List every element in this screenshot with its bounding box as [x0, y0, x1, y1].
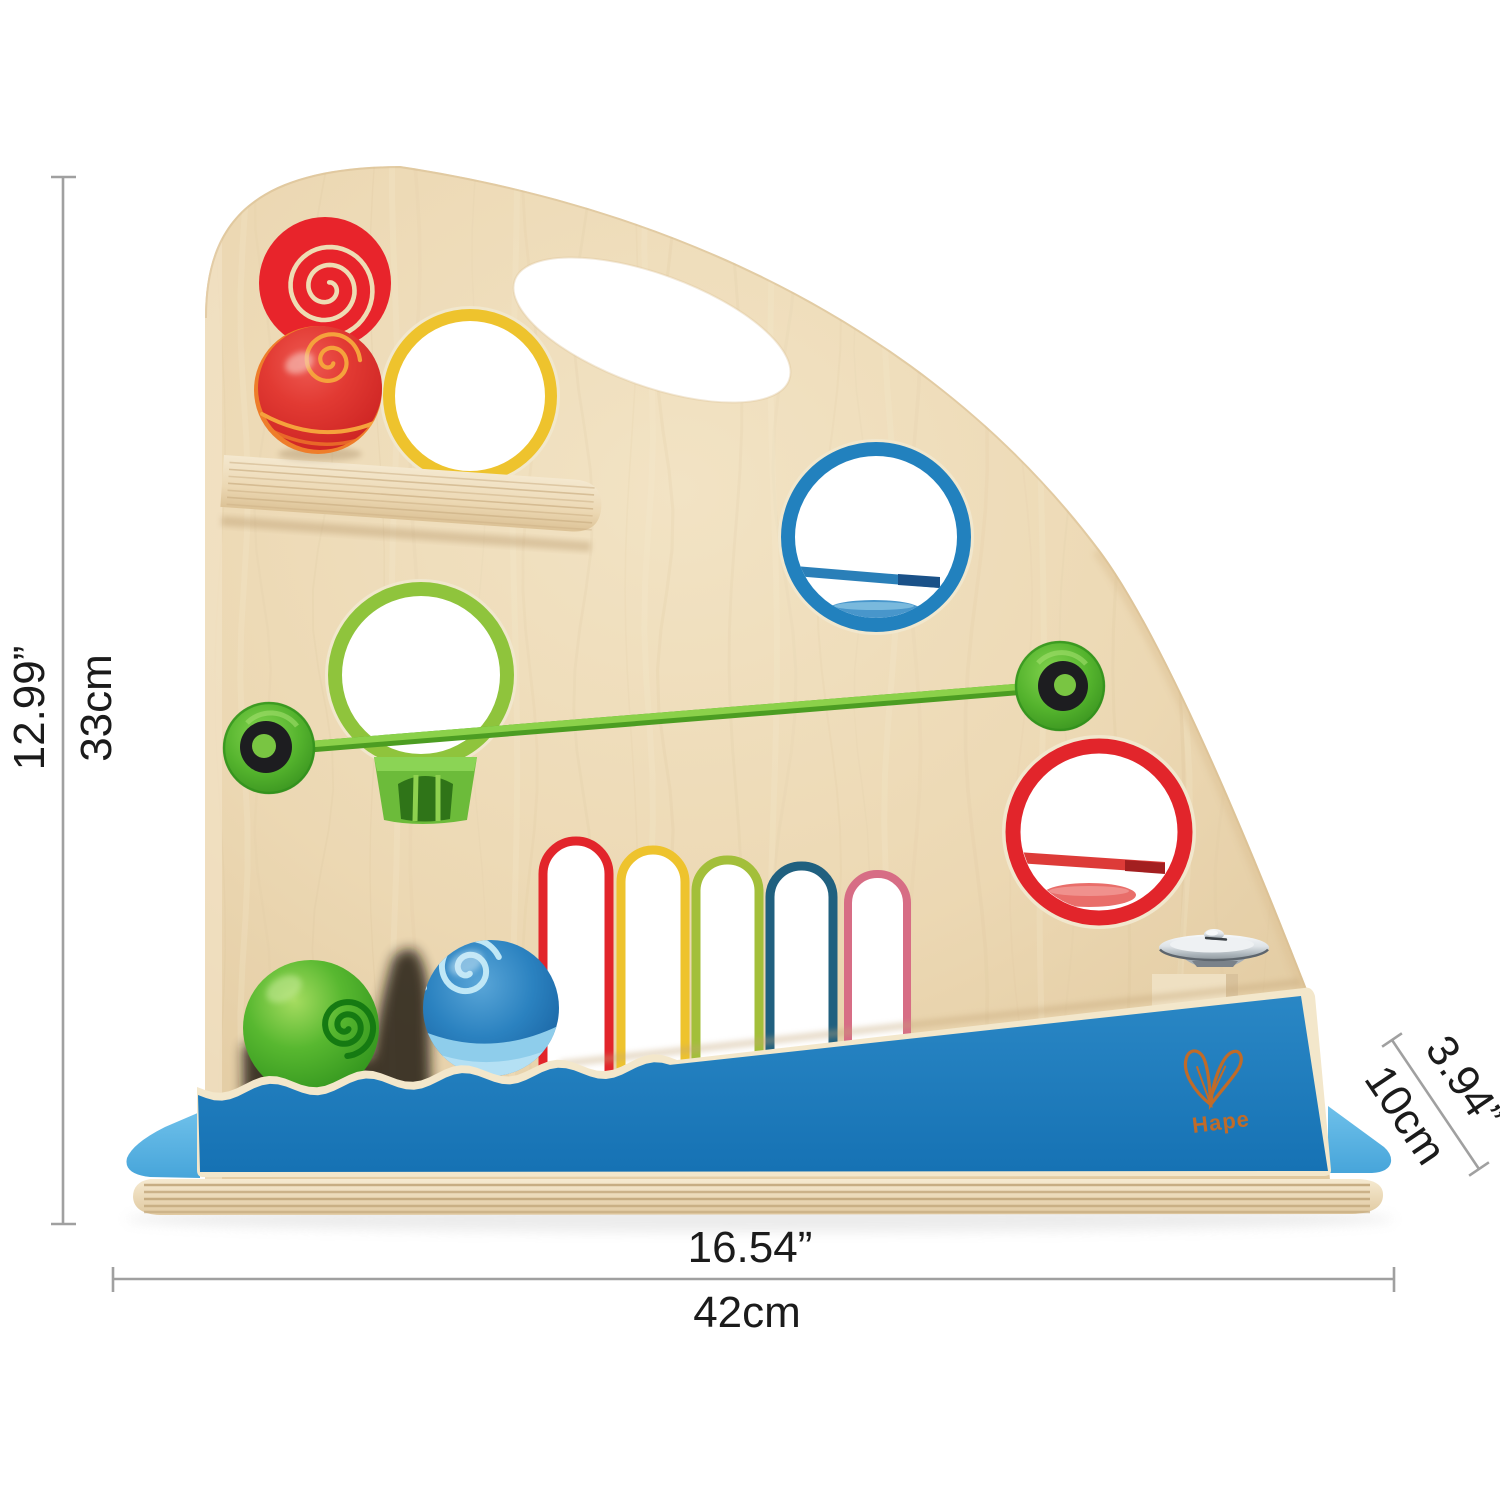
svg-text:42cm: 42cm: [693, 1288, 801, 1337]
svg-text:33cm: 33cm: [72, 654, 121, 762]
svg-text:16.54”: 16.54”: [688, 1223, 813, 1272]
svg-text:12.99”: 12.99”: [5, 646, 54, 771]
